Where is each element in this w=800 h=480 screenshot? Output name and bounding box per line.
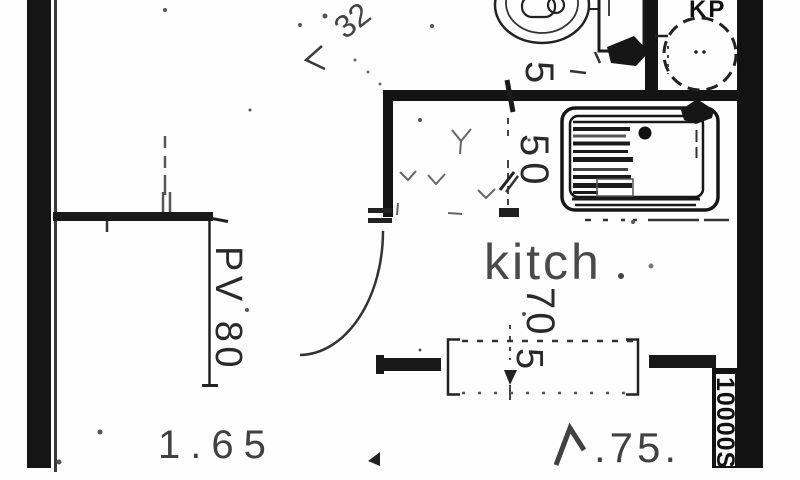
svg-text:50: 50 bbox=[512, 134, 556, 191]
svg-text:10000S: 10000S bbox=[711, 377, 739, 469]
svg-text:1.65: 1.65 bbox=[158, 423, 276, 467]
svg-text:PV 80: PV 80 bbox=[207, 246, 249, 372]
svg-text:5: 5 bbox=[517, 61, 561, 83]
svg-text:.75.: .75. bbox=[594, 424, 680, 471]
svg-text:KP: KP bbox=[689, 0, 726, 23]
svg-text:kitch: kitch bbox=[484, 234, 602, 290]
svg-text:5: 5 bbox=[508, 348, 550, 369]
